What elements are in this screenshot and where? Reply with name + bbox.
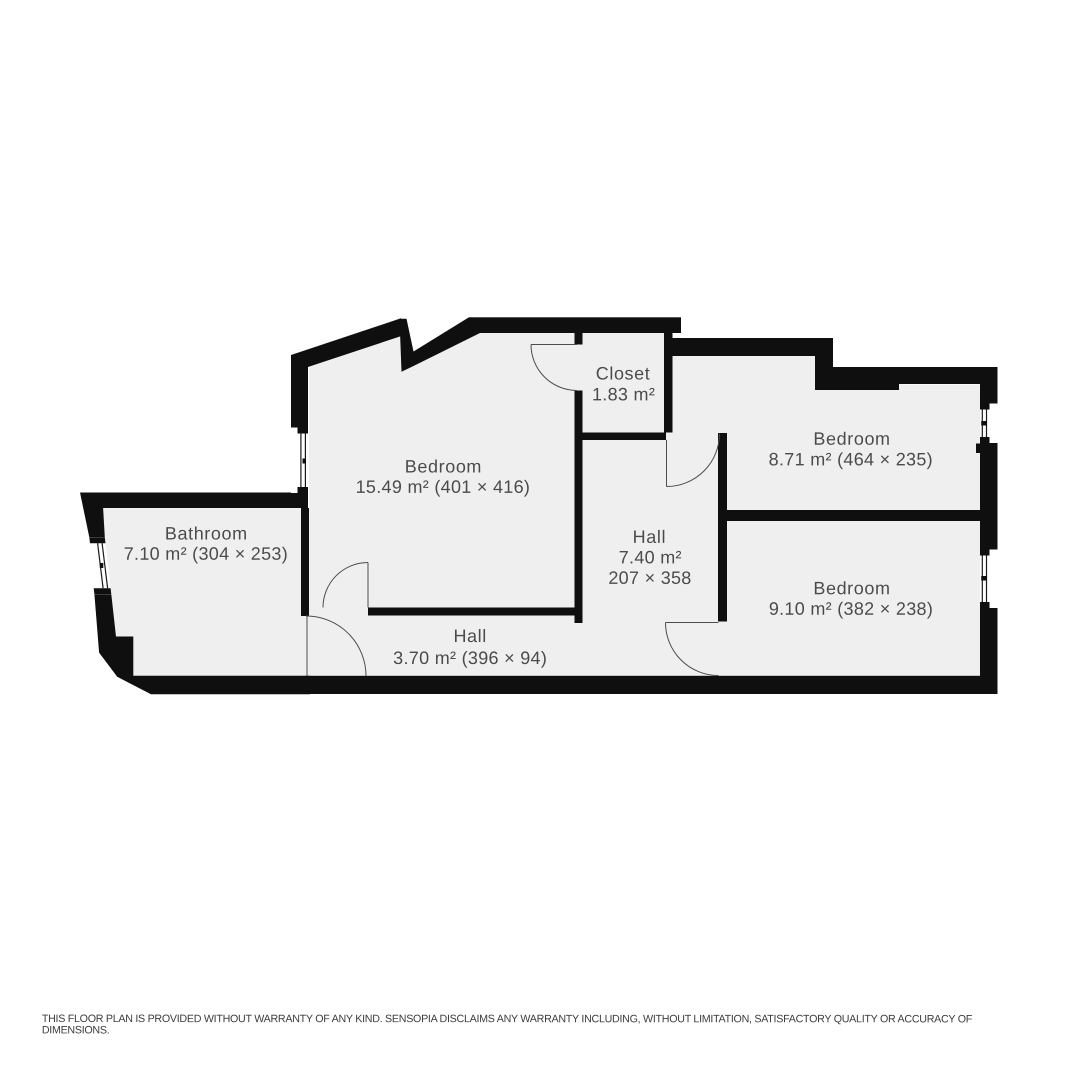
svg-text:Hall: Hall <box>453 626 486 646</box>
svg-text:Bedroom: Bedroom <box>405 456 482 476</box>
svg-text:Closet: Closet <box>596 364 651 384</box>
svg-text:Bedroom: Bedroom <box>813 578 890 598</box>
svg-text:3.70 m² (396 × 94): 3.70 m² (396 × 94) <box>393 648 547 668</box>
svg-text:Bedroom: Bedroom <box>813 429 890 449</box>
svg-text:THIS FLOOR PLAN IS PROVIDED WI: THIS FLOOR PLAN IS PROVIDED WITHOUT WARR… <box>42 1013 973 1025</box>
svg-text:7.40 m²: 7.40 m² <box>619 547 682 567</box>
svg-text:Bathroom: Bathroom <box>165 523 248 543</box>
svg-text:15.49 m² (401 × 416): 15.49 m² (401 × 416) <box>356 477 531 497</box>
svg-text:Hall: Hall <box>633 527 666 547</box>
svg-text:1.83 m²: 1.83 m² <box>592 384 655 404</box>
svg-text:8.71 m² (464 × 235): 8.71 m² (464 × 235) <box>769 449 933 469</box>
svg-text:7.10 m² (304 × 253): 7.10 m² (304 × 253) <box>124 544 288 564</box>
svg-text:DIMENSIONS.: DIMENSIONS. <box>42 1024 110 1036</box>
svg-text:207 × 358: 207 × 358 <box>608 568 691 588</box>
svg-text:9.10 m² (382 × 238): 9.10 m² (382 × 238) <box>769 599 933 619</box>
